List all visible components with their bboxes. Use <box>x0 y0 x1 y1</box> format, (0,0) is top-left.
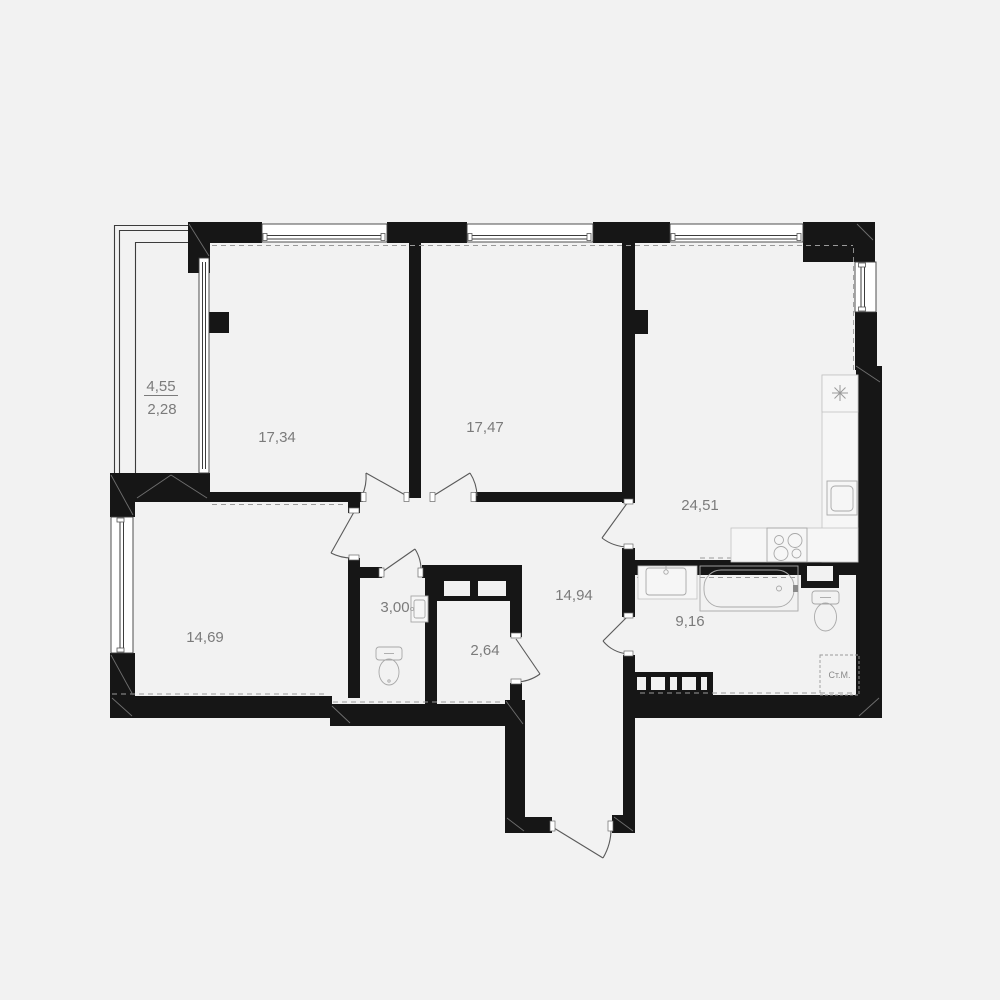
wall-hall-top-left <box>205 492 363 502</box>
floor-plan-canvas: Ст.М. 4,55 2,28 17,34 17,47 24,51 14,94 … <box>0 0 1000 1000</box>
door-wc <box>379 549 423 577</box>
wall-pier <box>622 310 648 334</box>
kitchen-fixtures <box>731 375 858 562</box>
wall-hall-top-right <box>475 492 622 502</box>
door-room-14-69 <box>331 508 359 560</box>
window-top-1 <box>262 224 387 242</box>
wall <box>803 222 875 262</box>
window-top-3 <box>670 224 803 242</box>
kitchen-area-label: 24,51 <box>681 497 719 514</box>
wall-bottom-step <box>330 704 525 726</box>
floor-plan: Ст.М. 4,55 2,28 17,34 17,47 24,51 14,94 … <box>0 0 1000 1000</box>
door-kitchen <box>602 499 633 549</box>
door-bathroom <box>603 613 633 656</box>
fridge-icon <box>822 375 858 412</box>
wall <box>593 222 670 243</box>
window-right <box>855 262 876 312</box>
wall-kitchen-left <box>622 243 635 503</box>
wall-storage-right-top <box>510 578 522 637</box>
washing-machine-icon: Ст.М. <box>820 655 859 695</box>
wall <box>856 366 882 718</box>
doors <box>331 473 633 858</box>
room-17-34-area-label: 17,34 <box>258 429 296 446</box>
room-14-69-area-label: 14,69 <box>186 629 224 646</box>
bathroom-area-label: 9,16 <box>675 613 704 630</box>
wall <box>387 222 467 243</box>
wall-pier <box>207 312 229 333</box>
balcony-area-label: 4,55 <box>146 378 175 395</box>
corridor-wall-left <box>505 700 525 833</box>
balcony-glazing <box>115 226 199 474</box>
door-room-17-47 <box>430 473 477 502</box>
window-top-2 <box>467 224 593 242</box>
storage-area-label: 2,64 <box>470 642 499 659</box>
wall-bottom-right <box>623 695 882 718</box>
door-room-17-34 <box>361 473 409 502</box>
wc-area-label: 3,00 <box>380 599 409 616</box>
window-balcony-partition <box>199 258 209 473</box>
wall-storage-right-bottom <box>510 683 522 704</box>
door-storage <box>511 633 540 684</box>
hallway-area-label: 14,94 <box>555 587 593 604</box>
balcony-reduced-area-label: 2,28 <box>147 401 176 418</box>
wc-sink-icon <box>410 596 428 622</box>
corridor-wall-stub-left <box>505 817 552 833</box>
window-left <box>111 517 133 653</box>
interior-walls <box>205 243 862 704</box>
washing-machine-label: Ст.М. <box>828 670 850 680</box>
wall-between-rooms <box>409 243 421 498</box>
door-entrance <box>550 821 613 858</box>
room-17-47-area-label: 17,47 <box>466 419 504 436</box>
wall-hall-kitchen <box>622 548 635 617</box>
wall-bedroom-right <box>348 558 360 698</box>
wc-toilet-icon <box>376 647 402 685</box>
bathroom-sink-icon <box>638 566 697 599</box>
wall <box>855 312 877 370</box>
toilet-icon <box>812 591 839 631</box>
wall-balcony-bottom <box>135 473 210 502</box>
wall-bottom-left <box>110 696 332 718</box>
